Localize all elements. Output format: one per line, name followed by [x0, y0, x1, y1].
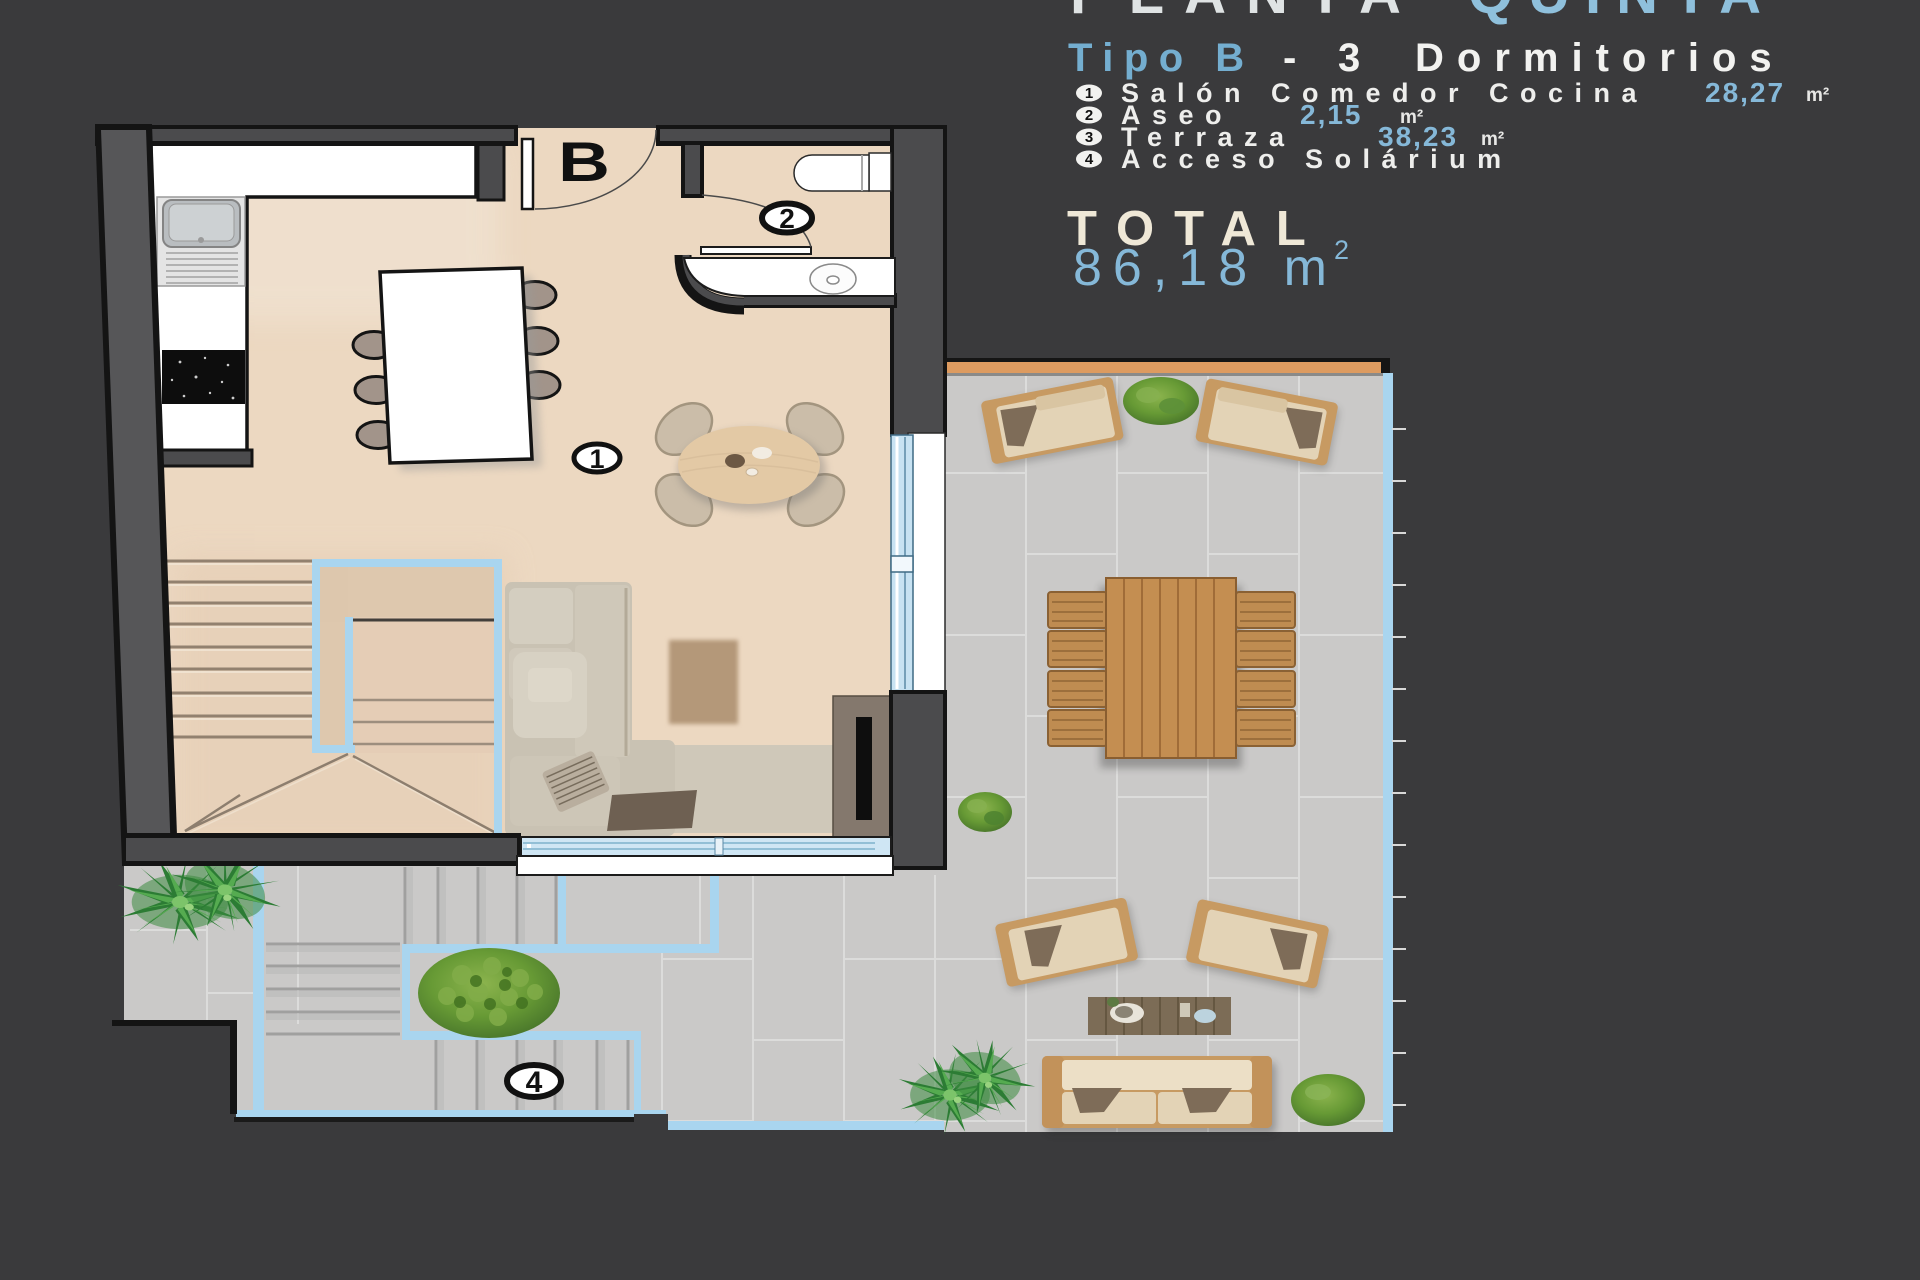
svg-text:86,18 m: 86,18 m [1073, 239, 1338, 297]
svg-text:4: 4 [526, 1066, 543, 1099]
svg-text:1: 1 [1085, 85, 1093, 102]
svg-text:2: 2 [1085, 107, 1093, 124]
svg-text:PLANTA: PLANTA [1070, 0, 1421, 26]
svg-text:B: B [558, 131, 610, 194]
svg-text:Tipo B-3Dormitorios: Tipo B-3Dormitorios [1068, 36, 1785, 80]
svg-text:m²: m² [1806, 85, 1829, 106]
svg-text:3: 3 [1085, 129, 1093, 146]
svg-text:2,15: 2,15 [1300, 99, 1363, 130]
svg-text:2: 2 [1334, 235, 1349, 265]
svg-text:QUINTA: QUINTA [1468, 0, 1776, 26]
svg-text:m²: m² [1400, 107, 1423, 128]
svg-text:4: 4 [1085, 151, 1094, 168]
svg-text:1: 1 [589, 444, 604, 474]
svg-text:m²: m² [1481, 129, 1504, 150]
svg-text:2: 2 [779, 203, 795, 234]
svg-text:28,27: 28,27 [1705, 77, 1785, 108]
